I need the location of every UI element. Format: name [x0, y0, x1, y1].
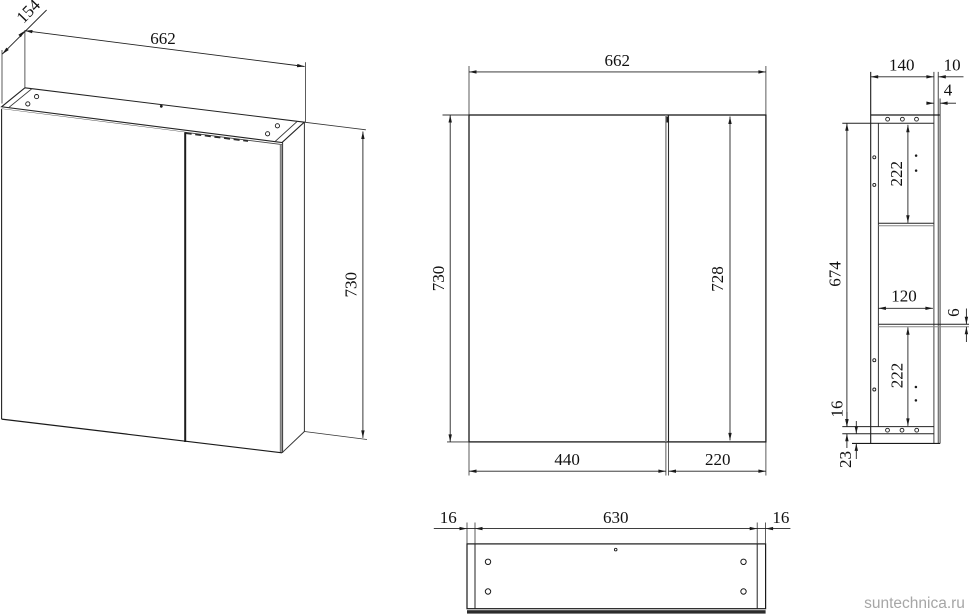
- svg-text:140: 140: [889, 55, 915, 74]
- svg-text:222: 222: [887, 161, 906, 187]
- svg-text:220: 220: [705, 450, 731, 469]
- svg-text:6: 6: [944, 308, 963, 317]
- svg-text:16: 16: [772, 508, 789, 527]
- svg-text:10: 10: [944, 55, 961, 74]
- svg-text:730: 730: [429, 266, 448, 292]
- svg-text:16: 16: [828, 401, 847, 418]
- svg-text:662: 662: [605, 51, 631, 70]
- svg-text:630: 630: [603, 508, 629, 527]
- svg-text:suntechnica.ru: suntechnica.ru: [864, 595, 965, 612]
- svg-text:730: 730: [342, 272, 361, 298]
- svg-text:4: 4: [944, 81, 953, 100]
- svg-text:16: 16: [440, 508, 457, 527]
- svg-text:120: 120: [891, 287, 917, 306]
- svg-text:728: 728: [708, 266, 727, 292]
- svg-text:222: 222: [888, 363, 907, 389]
- svg-text:674: 674: [826, 261, 845, 287]
- svg-text:23: 23: [836, 451, 855, 468]
- svg-text:662: 662: [150, 29, 176, 48]
- svg-text:440: 440: [554, 450, 580, 469]
